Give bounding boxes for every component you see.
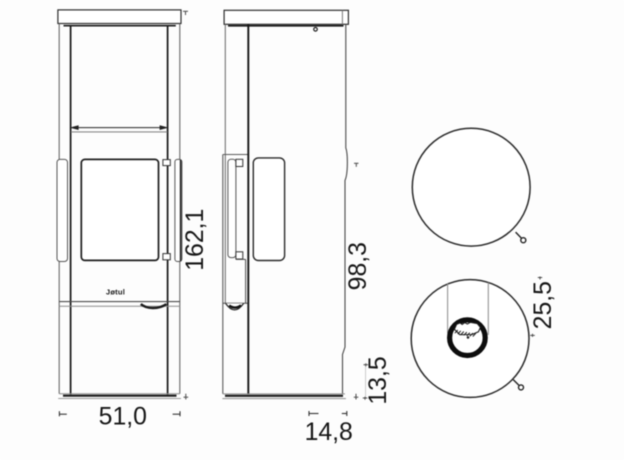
svg-text:14,8: 14,8: [305, 419, 353, 446]
svg-text:Jøtul: Jøtul: [106, 288, 125, 297]
svg-text:51,0: 51,0: [99, 403, 147, 430]
svg-text:162,1: 162,1: [182, 209, 209, 271]
svg-text:98,3: 98,3: [345, 242, 372, 290]
svg-text:13,5: 13,5: [365, 356, 392, 404]
svg-text:25,5: 25,5: [530, 281, 557, 329]
